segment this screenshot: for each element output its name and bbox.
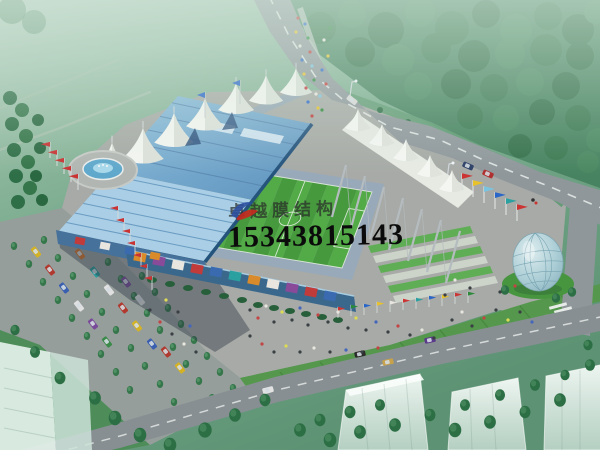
atmospheric-mist: [0, 0, 600, 175]
rendering-canvas: 卓越膜结构 15343815143: [0, 0, 600, 450]
stadium-aerial-scene: [0, 0, 600, 450]
